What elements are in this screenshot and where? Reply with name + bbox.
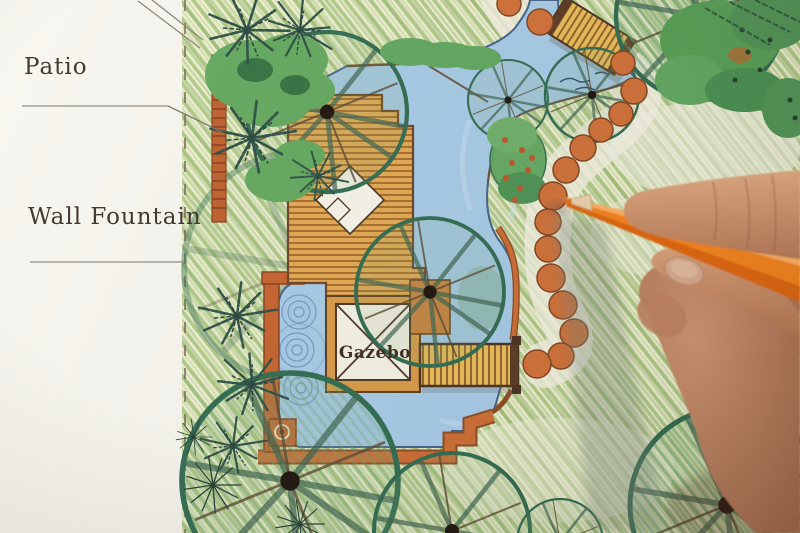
gazebo-label: Gazebo [338,343,412,363]
photo-of-landscape-plan: Patio Wall Fountain Gazebo [0,0,800,533]
boardwalk-post [512,385,521,394]
stepping-stone [570,135,596,161]
stepping-stone [523,350,551,378]
stepping-stone [553,157,579,183]
stepping-stone [611,51,635,75]
stepping-stone [527,9,553,35]
patio-label: Patio [24,54,88,80]
landscape-plan-drawing [0,0,800,533]
boardwalk-end-rail [510,344,518,386]
stepping-stone [609,102,633,126]
wall-fountain-label: Wall Fountain [28,204,202,230]
boardwalk-post [512,336,521,345]
stepping-stone [621,78,647,104]
